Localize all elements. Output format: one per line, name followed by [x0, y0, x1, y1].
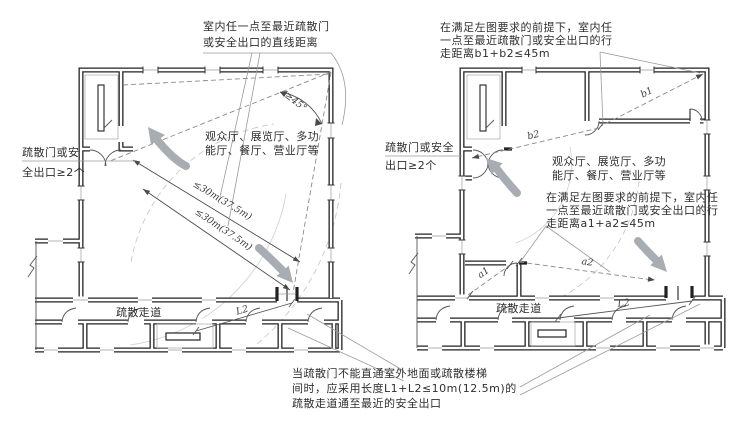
stair-handrail: [98, 85, 104, 131]
right-annotation-mid-line3: 走距离a1+a2≤45m: [546, 216, 656, 230]
left-annotation-top-line1: 室内任一点至最近疏散门: [203, 19, 330, 33]
left-angle-label: ≥45°: [282, 90, 308, 114]
right-annotation-top-line3: 走距离b1+b2≤45m: [440, 46, 550, 60]
left-room-label-line2: 能厅、餐厅、营业厅等: [205, 143, 319, 157]
right-annotation-exits-line1: 疏散门或安全: [385, 140, 454, 154]
b1-label: b1: [639, 85, 655, 100]
stair-bottom: [531, 322, 575, 346]
right-annotation-mid-line1: 在满足左图要求的前提下，室内任: [546, 190, 719, 204]
b2-label: b2: [526, 129, 540, 142]
left-annotation-exits-line2: 全出口≥2个: [22, 165, 85, 179]
right-room-label-line2: 能厅、餐厅、营业厅等: [552, 168, 666, 182]
left-corridor-label: 疏散走道: [116, 305, 162, 319]
footnote-line1: 当疏散门不能直通室外地面或疏散楼梯: [292, 366, 488, 380]
right-annotation-top-line2: 一点至最近疏散门或安全出口的行: [440, 33, 613, 47]
doors: [62, 150, 322, 322]
stair-top-left: [467, 75, 500, 139]
escape-arrow-upleft: [486, 158, 517, 193]
walls: [28, 67, 340, 351]
right-l2-label: L2: [616, 297, 631, 310]
right-annotation-exits-line2: 出口≥2个: [385, 158, 437, 172]
left-annotation-exits-line1: 疏散门或安: [22, 145, 80, 159]
stair-handrail: [480, 85, 486, 131]
right-annotation-mid-line2: 一点至最近疏散门或安全出口的行: [546, 203, 719, 217]
escape-arrow-downright: [638, 241, 667, 272]
left-room-label-line1: 观众厅、展览厅、多功: [205, 129, 319, 143]
stair-flight-bar: [538, 330, 566, 337]
right-floor-plan: 在满足左图要求的前提下，室内任 一点至最近疏散门或安全出口的行 走距离b1+b2…: [385, 20, 723, 348]
figure-canvas: 室内任一点至最近疏散门 或安全出口的直线距离 疏散门或安 全出口≥2个 观众厅、…: [0, 0, 735, 422]
stair-flight-bar: [166, 333, 200, 340]
stair-bottom: [157, 324, 213, 348]
a2-label: a2: [581, 256, 594, 269]
stair-top-left: [85, 75, 118, 139]
right-annotation-top-line1: 在满足左图要求的前提下，室内任: [440, 20, 613, 34]
right-room-label-line1: 观众厅、展览厅、多功: [552, 154, 666, 168]
left-annotation-top-line2: 或安全出口的直线距离: [203, 35, 318, 49]
evacuation-diagram: 室内任一点至最近疏散门 或安全出口的直线距离 疏散门或安 全出口≥2个 观众厅、…: [0, 0, 735, 422]
escape-arrow-downright: [259, 248, 293, 283]
right-corridor-label: 疏散走道: [496, 301, 542, 315]
a1-label: a1: [476, 265, 492, 281]
left-floor-plan: 室内任一点至最近疏散门 或安全出口的直线距离 疏散门或安 全出口≥2个 观众厅、…: [22, 19, 346, 350]
footnote-line2: 间时，应采用长度L1+L2≤10m(12.5m)的: [292, 381, 517, 395]
footnote-line3: 疏散走道通至最近的安全出口: [292, 396, 442, 410]
